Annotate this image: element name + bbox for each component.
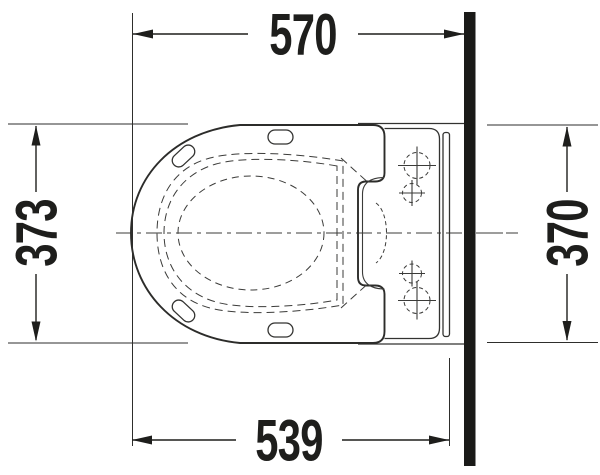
arrowhead-right	[444, 30, 464, 39]
dimension-label-top: 570	[269, 2, 336, 67]
arrowhead-down	[32, 322, 41, 342]
dimension-bottom: 539	[132, 358, 450, 473]
arrowhead-left	[133, 30, 153, 39]
dimension-label-right: 370	[535, 199, 600, 266]
dimension-right: 370	[487, 125, 600, 343]
hidden-edge-diagonal-top	[341, 158, 367, 182]
bumper-slot-top	[268, 130, 293, 144]
hinge-slot-upper-left	[170, 142, 198, 169]
arrowhead-right	[429, 436, 449, 445]
toilet-top-view-drawing: 570 539 373 370	[0, 0, 600, 475]
bumper-slot-bottom	[268, 323, 293, 337]
arrowhead-left	[132, 436, 152, 445]
wall-section-bar	[464, 12, 476, 466]
dimension-label-bottom: 539	[255, 408, 322, 473]
arrowhead-down	[563, 321, 572, 341]
dimension-label-left: 373	[4, 199, 69, 266]
hidden-edge-diagonal-bottom	[341, 285, 367, 309]
arrowhead-up	[563, 127, 572, 147]
seat-lid-outline	[131, 125, 385, 343]
dimension-top: 570	[133, 2, 465, 446]
technical-drawing-canvas: 570 539 373 370	[0, 0, 600, 475]
rear-mounting-plate	[443, 133, 450, 337]
ceramic-rear-edges	[358, 124, 464, 345]
arrowhead-up	[32, 126, 41, 146]
